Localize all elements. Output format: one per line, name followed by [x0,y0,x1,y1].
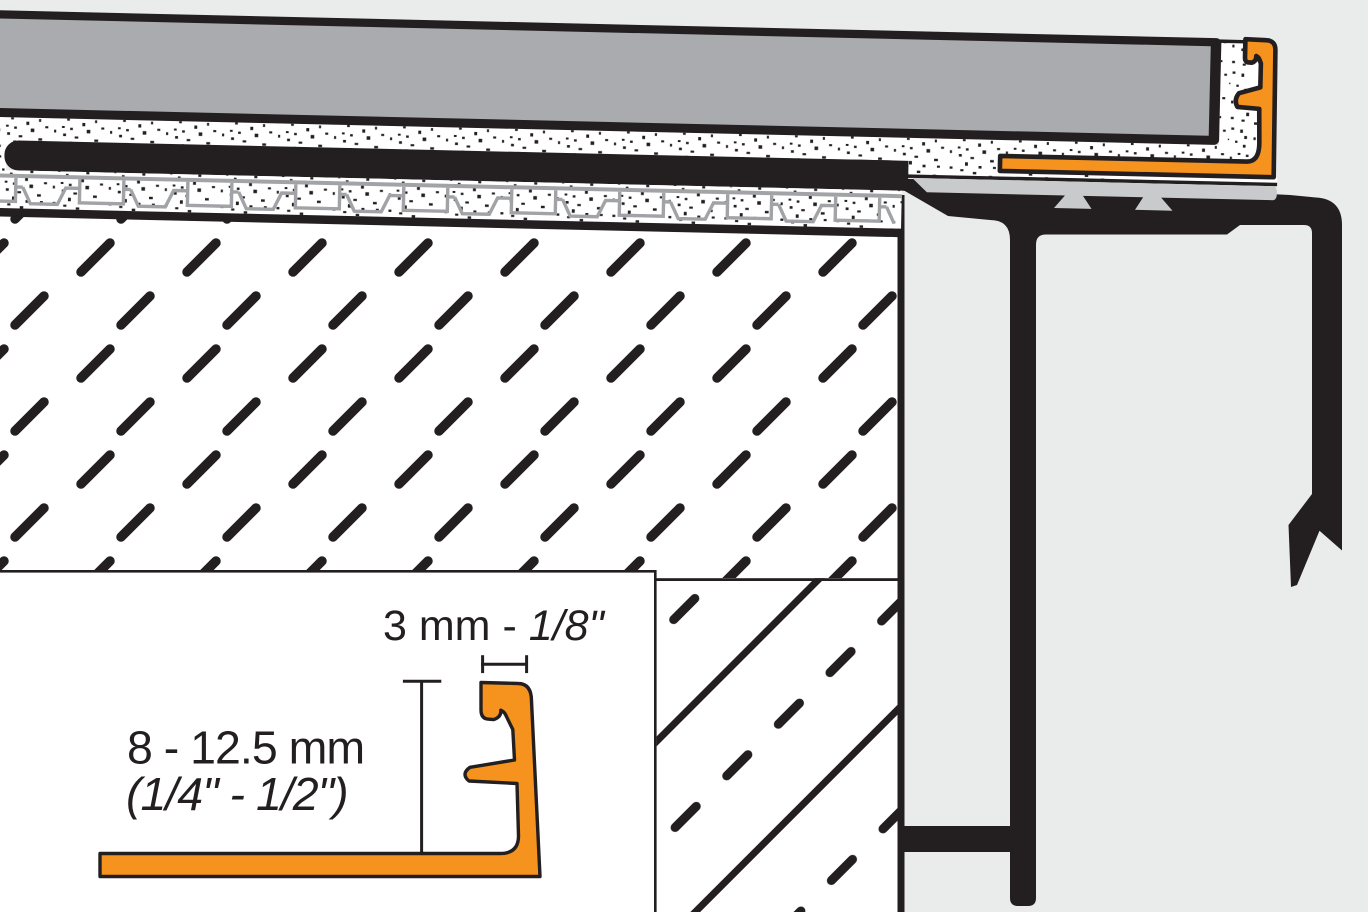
svg-text:8 - 12.5 mm: 8 - 12.5 mm [127,722,364,774]
svg-text:3 mm - 1/8": 3 mm - 1/8" [383,602,605,650]
svg-text:(1/4" - 1/2"): (1/4" - 1/2") [126,768,348,820]
